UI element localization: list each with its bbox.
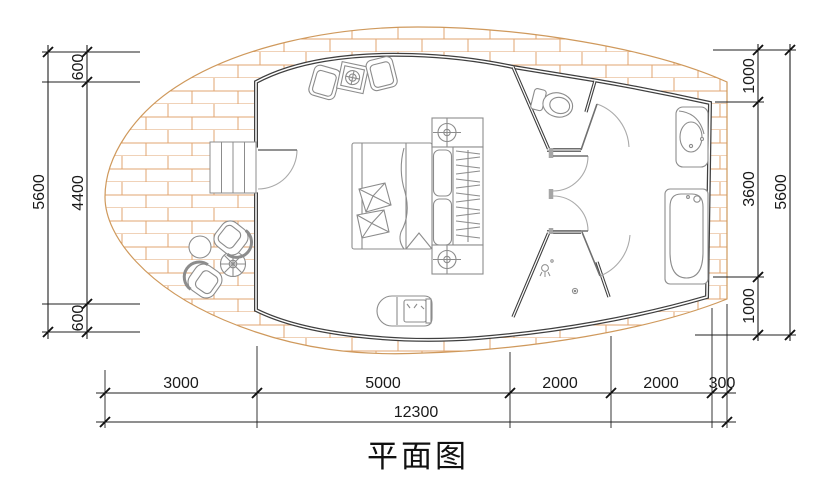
dim-right-seg-1: 3600 [741,171,758,207]
dim-bottom-seg-1: 5000 [365,375,401,392]
dim-bottom-seg-2: 2000 [542,375,578,392]
bathtub [665,189,708,284]
headboard-cushion-1 [434,150,452,196]
entry-steps [210,142,256,193]
drawing-title: 平面图 [367,439,469,474]
patio-side-table [189,236,211,258]
dim-bottom-total: 12300 [394,404,439,421]
dim-right-total: 5600 [773,174,790,210]
headboard-column [432,118,483,274]
tub-faucet-icon [694,196,700,202]
floor-plan-drawing: 5600 600 4400 600 1000 3600 1000 5600 30… [0,0,837,496]
bed [352,143,432,249]
dim-left-seg-2: 600 [70,305,87,332]
dim-bottom-seg-3: 2000 [643,375,679,392]
lounge-table [337,62,369,94]
chaise-bench [377,296,432,326]
dim-left-total: 5600 [31,174,48,210]
dim-bottom-seg-0: 3000 [163,375,199,392]
dim-right-seg-0: 1000 [741,58,758,94]
floor-plan-page: 5600 600 4400 600 1000 3600 1000 5600 30… [0,0,837,496]
dim-left-seg-0: 600 [70,54,87,81]
tub-basin [670,194,703,278]
dim-bottom-seg-4: 300 [709,375,736,392]
dim-right-seg-2: 1000 [741,288,758,324]
headboard-cushion-2 [434,199,452,245]
dim-left-seg-1: 4400 [70,175,87,211]
washbasin [676,107,708,167]
